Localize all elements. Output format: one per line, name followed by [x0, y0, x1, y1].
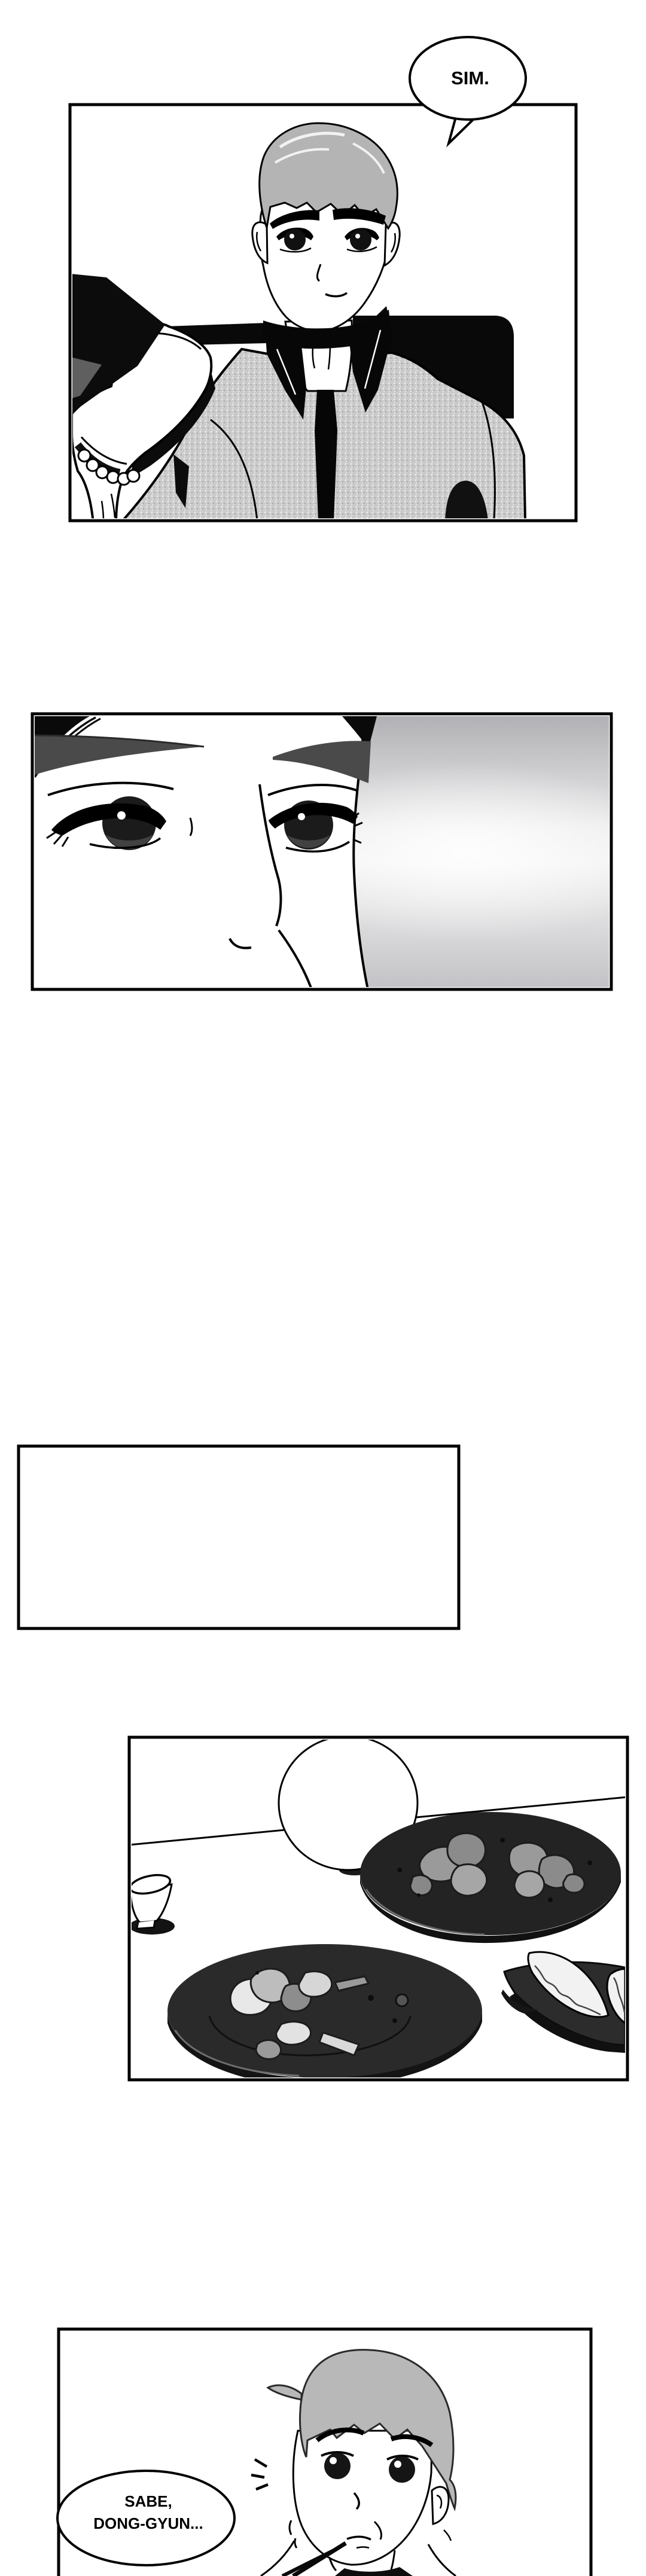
svg-text:SIM.: SIM. — [451, 68, 489, 88]
svg-text:SABE,: SABE, — [124, 2492, 172, 2510]
svg-text:DONG-GYUN...: DONG-GYUN... — [93, 2514, 203, 2532]
